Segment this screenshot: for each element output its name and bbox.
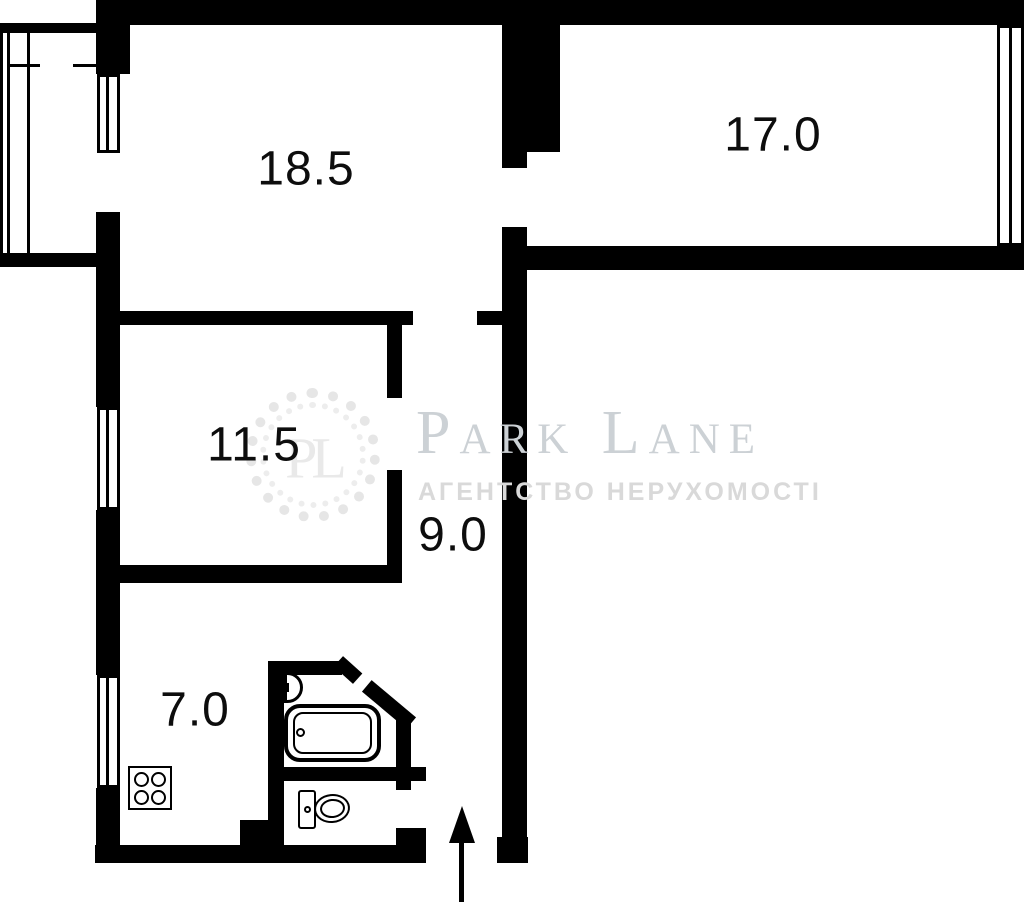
wall-living-bedroom-wide <box>502 25 560 152</box>
wall-room-11-5-bottom <box>120 565 402 583</box>
wall-living-bottom-stub <box>477 311 502 325</box>
stove-burner-icon <box>134 790 149 805</box>
wall-kitchen-pilaster <box>240 820 268 863</box>
watermark-tagline: АГЕНТСТВО НЕРУХОМОСТІ <box>418 478 822 507</box>
entrance-arrow-icon <box>449 806 475 843</box>
toilet-tank-button <box>304 806 311 813</box>
stove-burner-icon <box>151 790 166 805</box>
sink-tap-icon <box>282 683 289 692</box>
wall-top-left-corner <box>96 25 130 74</box>
floor-plan: PL Park Lane АГЕНТСТВО НЕРУХОМОСТІ 18.5 … <box>0 0 1024 906</box>
balcony-partition-line-left <box>10 64 40 67</box>
balcony-partition-line-right <box>73 64 96 67</box>
wall-bathroom-door-jamb <box>334 656 363 684</box>
stove-icon <box>128 766 172 810</box>
wall-top-outer <box>96 0 1024 25</box>
bedroom-window-mullion <box>1009 25 1012 246</box>
stove-burner-icon <box>134 772 149 787</box>
watermark-brand: Park Lane <box>416 402 764 464</box>
room-label-living: 18.5 <box>257 142 354 197</box>
wall-left-middle <box>96 510 120 675</box>
room-label-room: 11.5 <box>207 418 301 473</box>
balcony-top-wall <box>0 23 96 33</box>
wall-left-upper <box>96 212 120 407</box>
bathtub-drain-icon <box>296 728 305 737</box>
kitchen-window-mullion <box>106 675 109 788</box>
wall-living-bottom <box>120 311 413 325</box>
entrance-arrow-shaft <box>459 840 464 902</box>
wall-wc-right-lower <box>396 828 426 863</box>
room-label-bedroom: 17.0 <box>724 108 821 163</box>
room-label-hallway: 9.0 <box>418 508 488 563</box>
wall-living-bedroom-jamb-top <box>502 152 527 168</box>
wall-bath-wc-divider <box>284 767 426 781</box>
wall-bottom-entrance-post <box>497 837 528 863</box>
stove-burner-icon <box>151 772 166 787</box>
balcony-glazing-outer-line <box>0 23 3 267</box>
wall-hallway-right <box>502 270 527 837</box>
room-11-5-window-mullion <box>106 407 109 510</box>
wall-room-11-5-right-upper <box>387 311 402 398</box>
room-label-kitchen: 7.0 <box>160 683 230 738</box>
wall-bedroom-bottom <box>502 246 1024 270</box>
balcony-door-window-mullion <box>106 74 109 153</box>
balcony-bottom-wall <box>0 253 96 267</box>
